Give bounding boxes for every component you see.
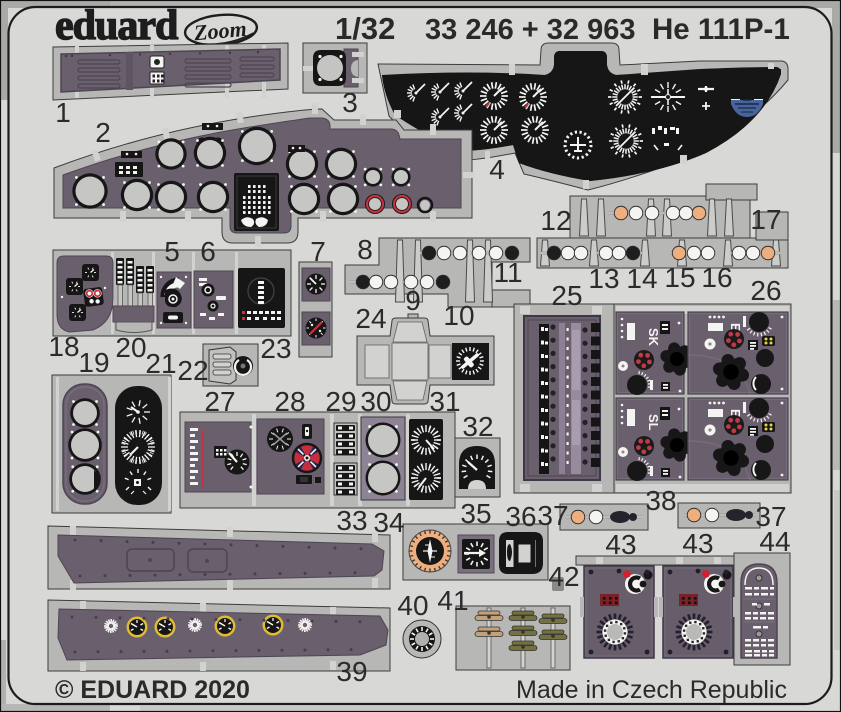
svg-text:38: 38 xyxy=(645,485,676,516)
svg-text:4: 4 xyxy=(489,154,505,185)
svg-text:42: 42 xyxy=(548,561,579,592)
svg-text:14: 14 xyxy=(626,263,657,294)
svg-text:20: 20 xyxy=(115,332,146,363)
svg-text:6: 6 xyxy=(200,236,216,267)
svg-text:31: 31 xyxy=(429,386,460,417)
svg-text:15: 15 xyxy=(664,262,695,293)
svg-text:© EDUARD 2020: © EDUARD 2020 xyxy=(55,676,250,704)
svg-text:23: 23 xyxy=(260,333,291,364)
svg-text:2: 2 xyxy=(95,117,111,148)
svg-text:1: 1 xyxy=(55,97,71,128)
svg-text:Made in Czech Republic: Made in Czech Republic xyxy=(516,676,787,704)
svg-text:28: 28 xyxy=(274,386,305,417)
svg-text:21: 21 xyxy=(145,348,176,379)
svg-text:SK: SK xyxy=(646,328,661,347)
svg-text:11: 11 xyxy=(493,257,522,288)
svg-text:18: 18 xyxy=(48,331,79,362)
svg-text:16: 16 xyxy=(701,262,732,293)
svg-text:10: 10 xyxy=(443,300,474,331)
svg-text:43: 43 xyxy=(682,528,713,559)
svg-text:35: 35 xyxy=(460,498,491,529)
svg-text:43: 43 xyxy=(605,529,636,560)
svg-text:13: 13 xyxy=(588,263,619,294)
svg-text:1/32: 1/32 xyxy=(335,11,395,46)
svg-text:27: 27 xyxy=(204,386,235,417)
svg-text:26: 26 xyxy=(750,275,781,306)
svg-text:8: 8 xyxy=(357,234,373,265)
svg-text:24: 24 xyxy=(355,303,386,334)
svg-text:eduard: eduard xyxy=(55,3,178,49)
svg-text:7: 7 xyxy=(310,236,326,267)
svg-text:41: 41 xyxy=(437,585,468,616)
svg-text:44: 44 xyxy=(759,526,790,557)
svg-text:33: 33 xyxy=(336,505,367,536)
svg-text:He 111P-1: He 111P-1 xyxy=(652,13,790,46)
svg-text:5: 5 xyxy=(164,236,180,267)
svg-text:36: 36 xyxy=(505,501,536,532)
svg-text:40: 40 xyxy=(397,590,428,621)
svg-text:25: 25 xyxy=(551,280,582,311)
svg-text:34: 34 xyxy=(373,507,404,538)
svg-text:3: 3 xyxy=(342,87,358,118)
svg-text:SL: SL xyxy=(646,414,661,431)
svg-text:32: 32 xyxy=(462,411,493,442)
svg-text:33 246 + 32 963: 33 246 + 32 963 xyxy=(425,14,635,46)
svg-text:37: 37 xyxy=(537,500,568,531)
svg-text:12: 12 xyxy=(540,205,571,236)
svg-text:19: 19 xyxy=(78,347,109,378)
svg-text:39: 39 xyxy=(336,656,367,687)
svg-text:17: 17 xyxy=(750,204,781,235)
svg-text:30: 30 xyxy=(360,386,391,417)
svg-text:Zoom: Zoom xyxy=(192,16,248,46)
svg-text:22: 22 xyxy=(177,355,208,386)
svg-text:29: 29 xyxy=(325,386,356,417)
svg-text:9: 9 xyxy=(405,285,421,316)
